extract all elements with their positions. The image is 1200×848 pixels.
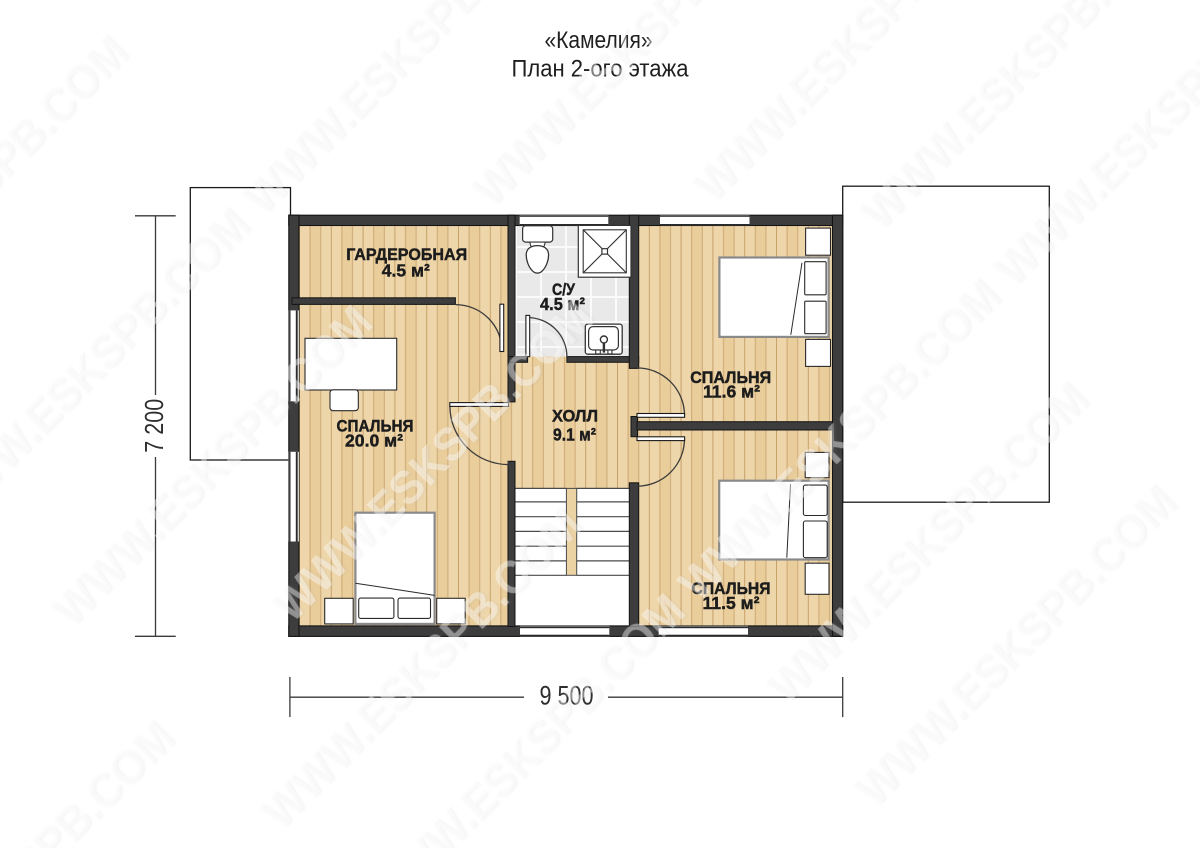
svg-text:11.6 м²: 11.6 м² [703, 382, 760, 402]
svg-text:7 200: 7 200 [139, 399, 169, 453]
svg-text:9.1 м²: 9.1 м² [553, 425, 596, 445]
svg-text:4.5 м²: 4.5 м² [382, 260, 430, 280]
svg-text:20.0 м²: 20.0 м² [345, 431, 403, 451]
svg-text:ХОЛЛ: ХОЛЛ [552, 407, 598, 426]
